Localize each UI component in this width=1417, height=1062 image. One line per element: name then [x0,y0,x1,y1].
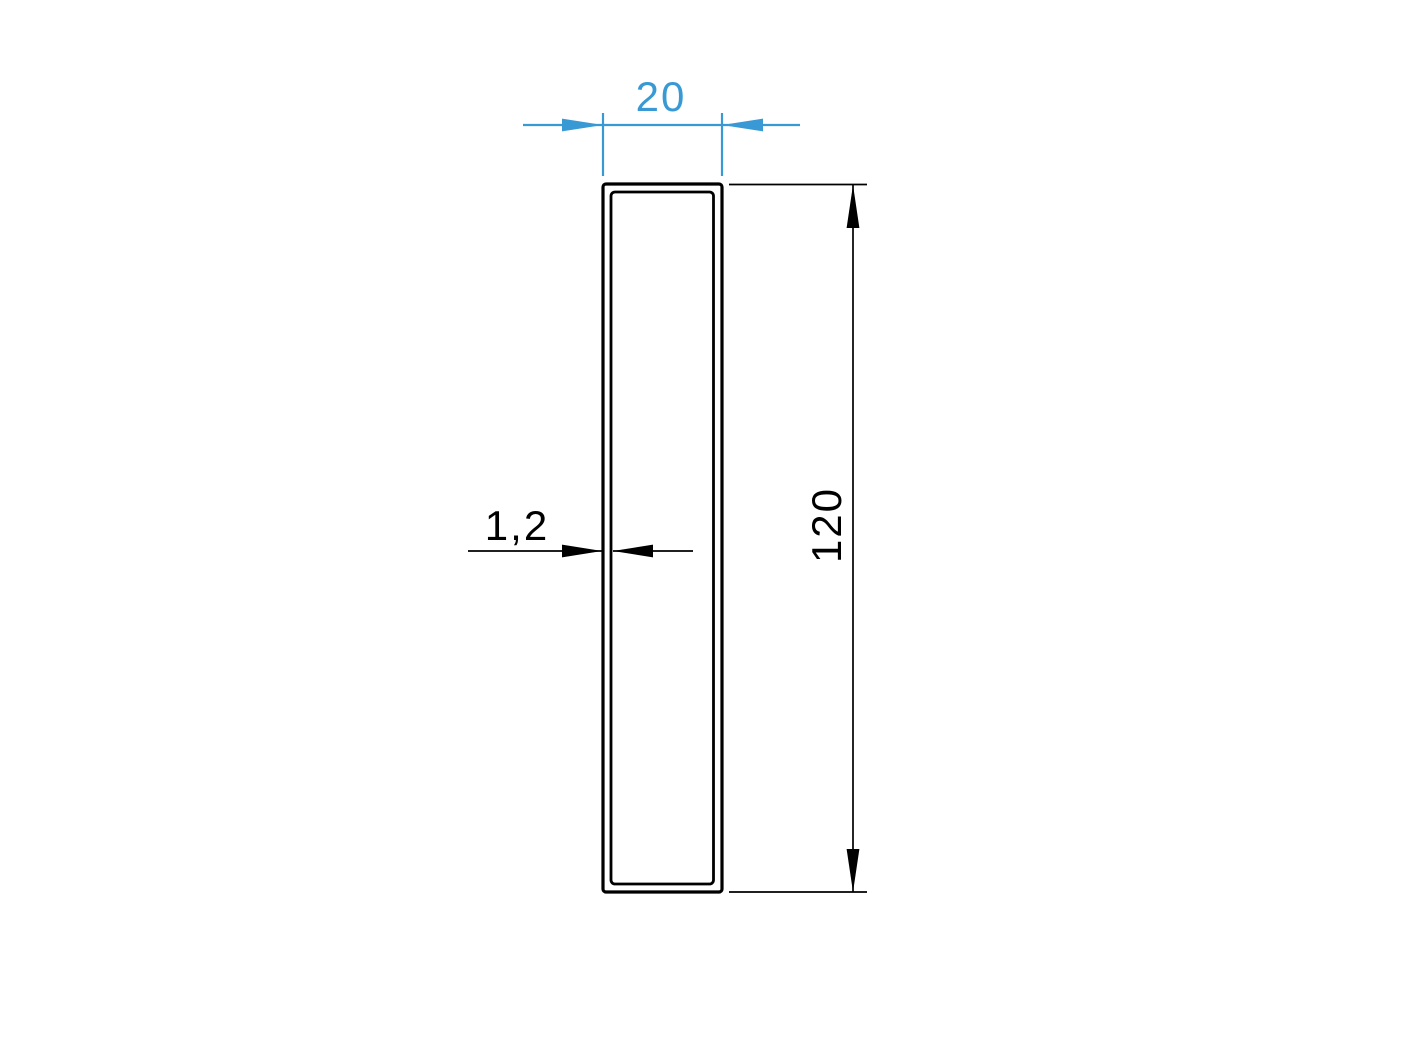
width-dimension-label: 20 [636,73,687,120]
height-dimension: 120 [729,185,867,893]
width-dimension: 20 [523,73,800,176]
width-arrowhead-left-icon [562,119,603,132]
thickness-dimension: 1,2 [468,502,693,557]
drawing-canvas: 20 120 1,2 [0,0,1417,1062]
technical-drawing: 20 120 1,2 [0,0,1417,1062]
tube-cross-section [603,184,722,892]
height-dimension-label: 120 [803,487,850,563]
thickness-arrowhead-left-icon [562,545,602,558]
thickness-arrowhead-right-icon [613,545,653,558]
tube-outer-outline [603,184,722,892]
tube-inner-outline [611,192,714,884]
height-arrowhead-top-icon [847,185,860,228]
thickness-dimension-label: 1,2 [485,502,549,549]
width-arrowhead-right-icon [722,119,763,132]
height-arrowhead-bottom-icon [847,849,860,892]
